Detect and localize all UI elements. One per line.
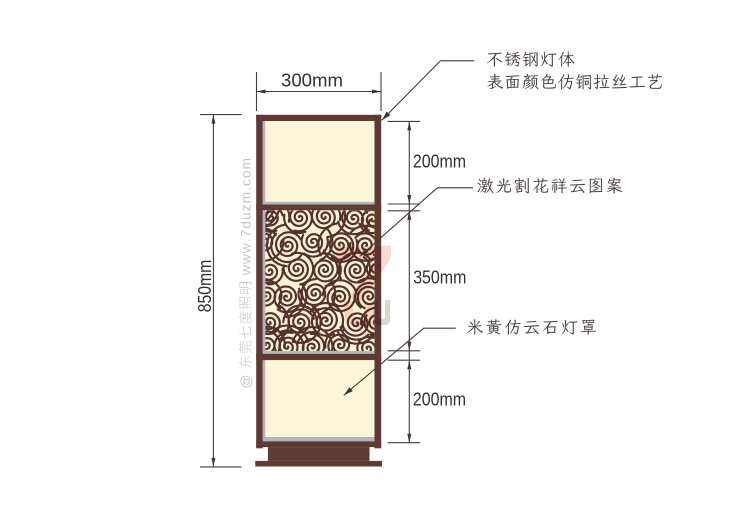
svg-text:350mm: 350mm [413,268,466,288]
svg-text:200mm: 200mm [413,152,466,172]
svg-text:300mm: 300mm [281,70,343,90]
svg-text:200mm: 200mm [413,390,466,410]
svg-text:850mm: 850mm [195,260,215,313]
